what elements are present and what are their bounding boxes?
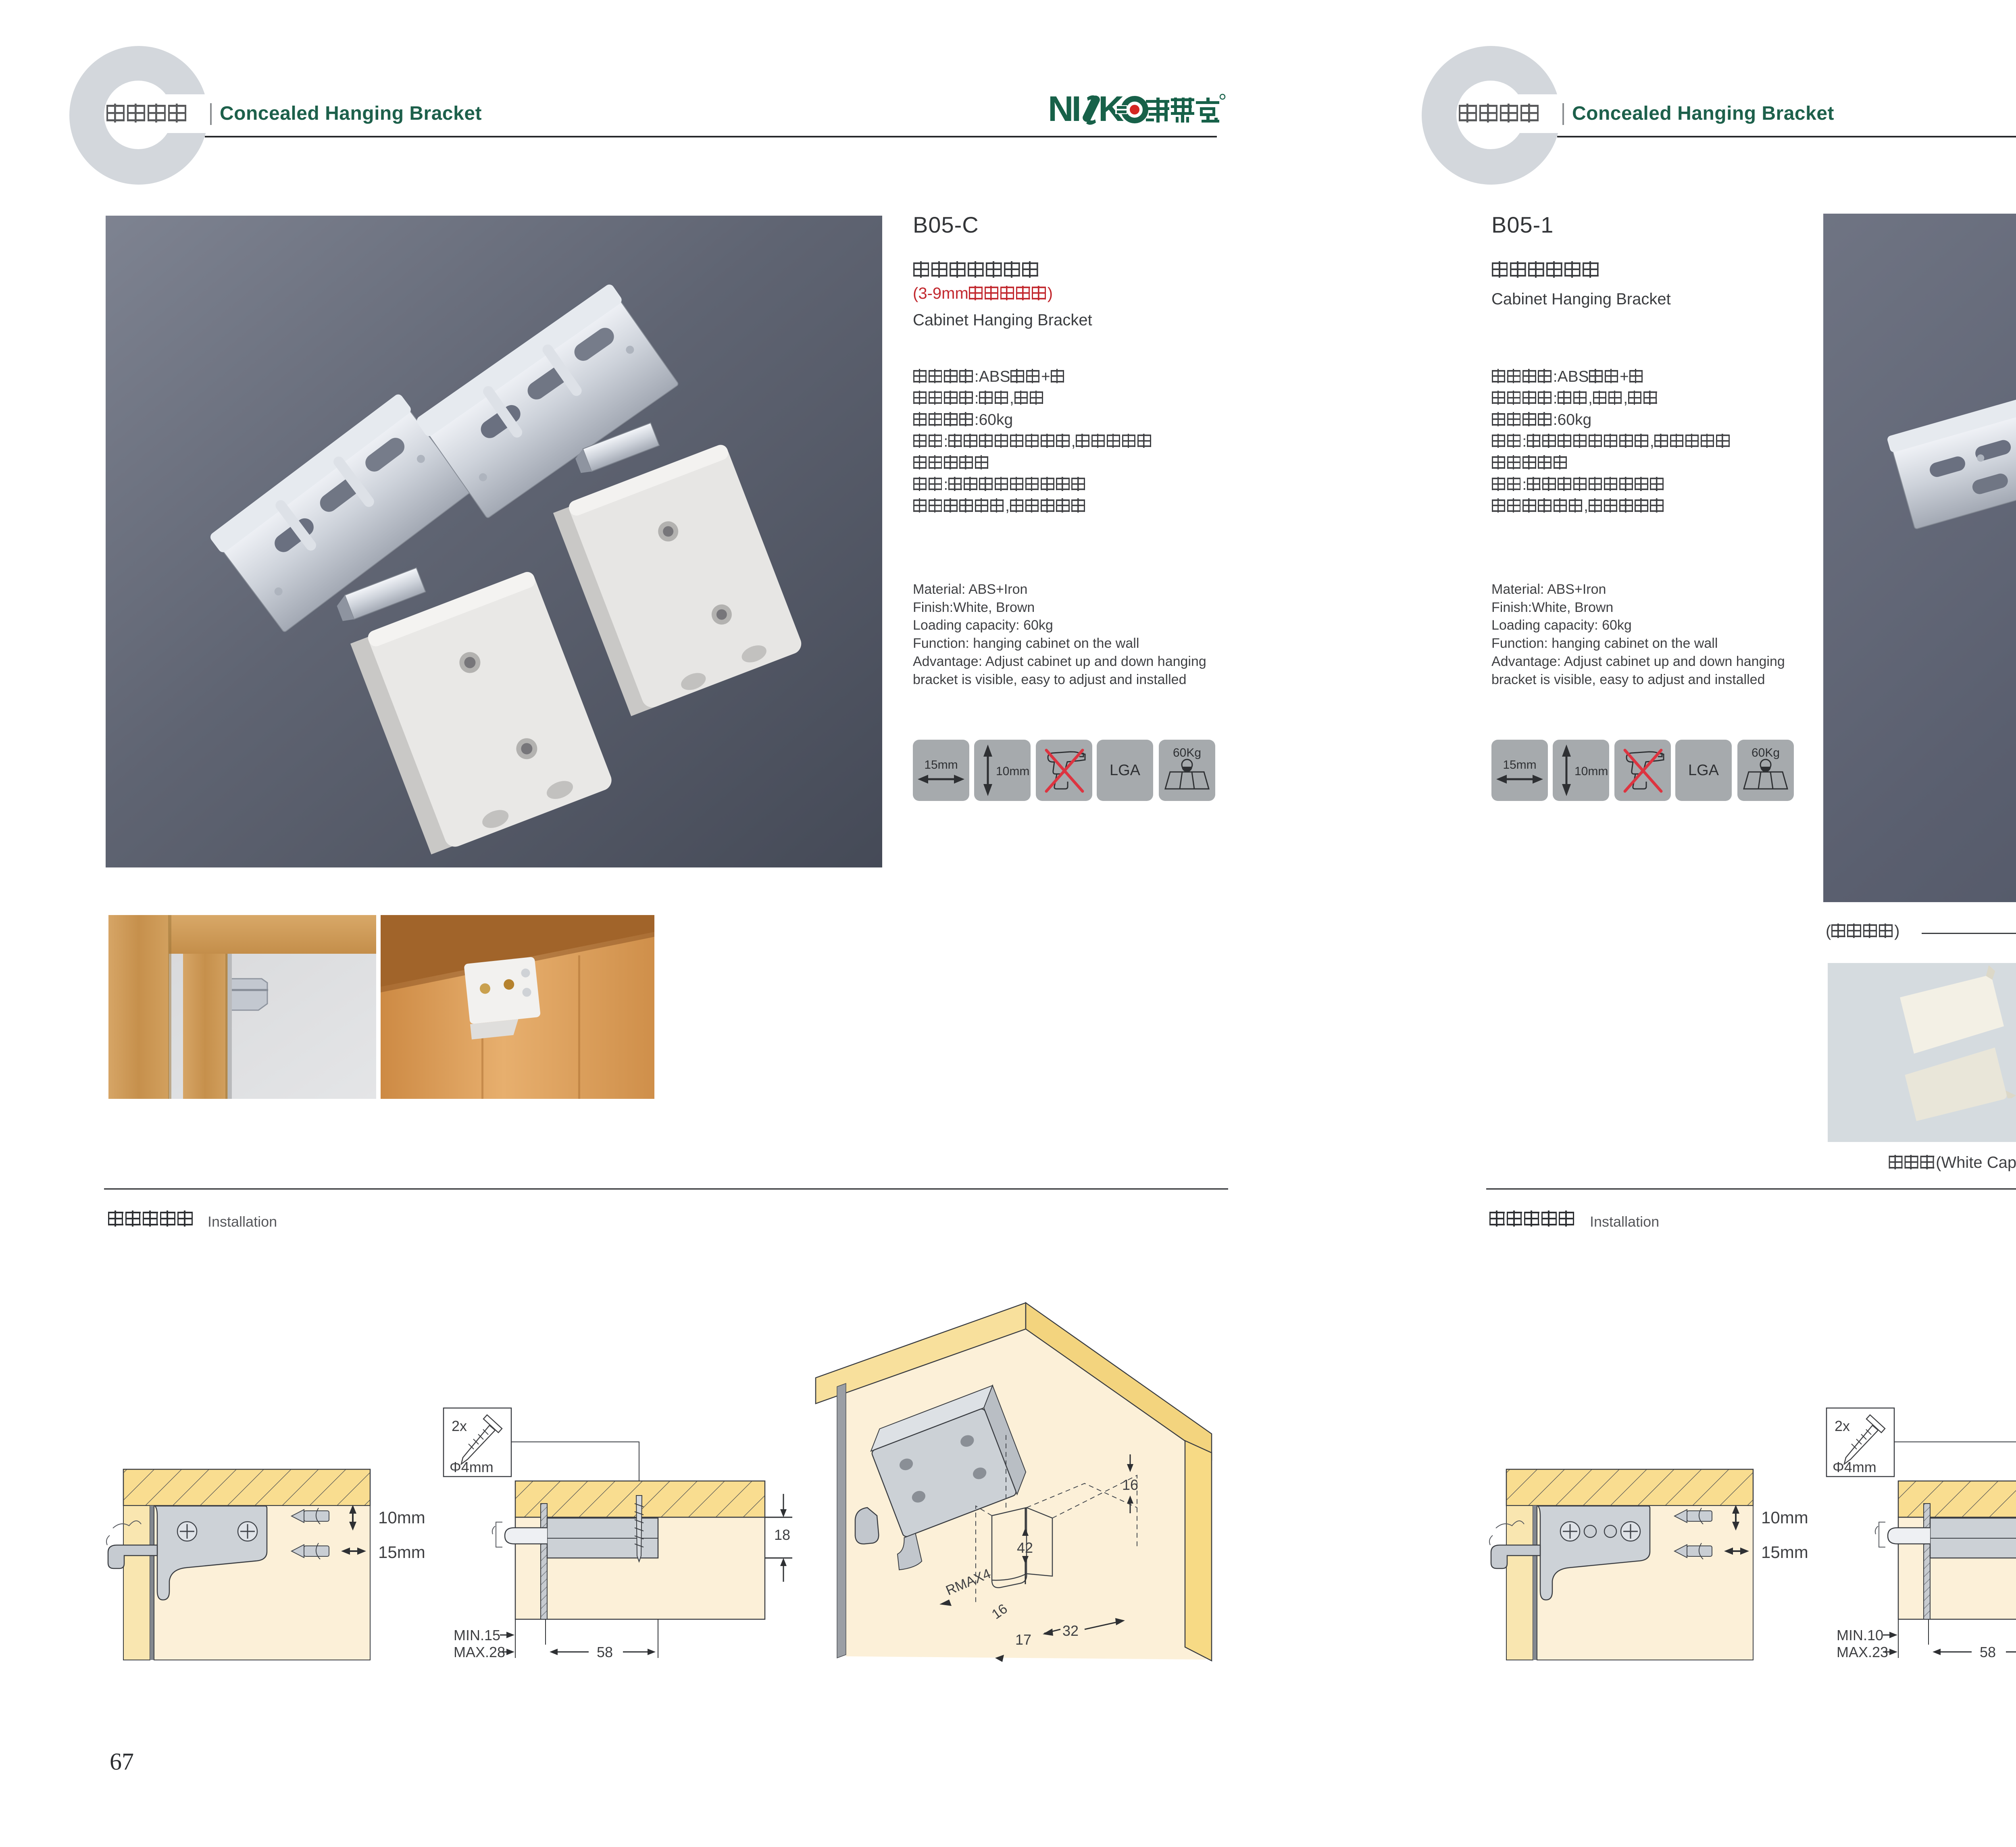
svg-text:NI: NI	[1050, 93, 1079, 127]
svg-text:MIN.15: MIN.15	[454, 1627, 500, 1643]
svg-text:2x: 2x	[452, 1418, 467, 1434]
svg-text:58: 58	[597, 1644, 613, 1660]
svg-text:MAX.28: MAX.28	[454, 1644, 505, 1660]
svg-text:60Kg: 60Kg	[1173, 746, 1201, 759]
svg-text:LGA: LGA	[1110, 762, 1141, 779]
svg-text:MAX.23: MAX.23	[1837, 1644, 1888, 1660]
svg-text:32: 32	[1062, 1622, 1079, 1639]
svg-text:42: 42	[1017, 1539, 1033, 1556]
svg-text:LGA: LGA	[1688, 762, 1719, 779]
svg-text:10mm: 10mm	[378, 1508, 425, 1527]
svg-text:15mm: 15mm	[378, 1543, 425, 1562]
svg-text:Φ4mm: Φ4mm	[1833, 1459, 1876, 1475]
svg-text:58: 58	[1980, 1644, 1996, 1660]
svg-text:Φ4mm: Φ4mm	[450, 1459, 494, 1475]
svg-text:2x: 2x	[1835, 1418, 1850, 1434]
svg-text:15mm: 15mm	[1503, 758, 1536, 772]
svg-text:10mm: 10mm	[996, 765, 1029, 778]
svg-text:10mm: 10mm	[1761, 1508, 1808, 1527]
svg-text:15mm: 15mm	[924, 758, 958, 772]
svg-text:15mm: 15mm	[1761, 1543, 1808, 1562]
svg-text:16: 16	[1122, 1477, 1138, 1493]
svg-text:17: 17	[1015, 1631, 1031, 1648]
svg-text:MIN.10: MIN.10	[1837, 1627, 1883, 1643]
svg-text:10mm: 10mm	[1574, 765, 1608, 778]
svg-text:18: 18	[774, 1527, 790, 1543]
svg-text:60Kg: 60Kg	[1752, 746, 1780, 759]
